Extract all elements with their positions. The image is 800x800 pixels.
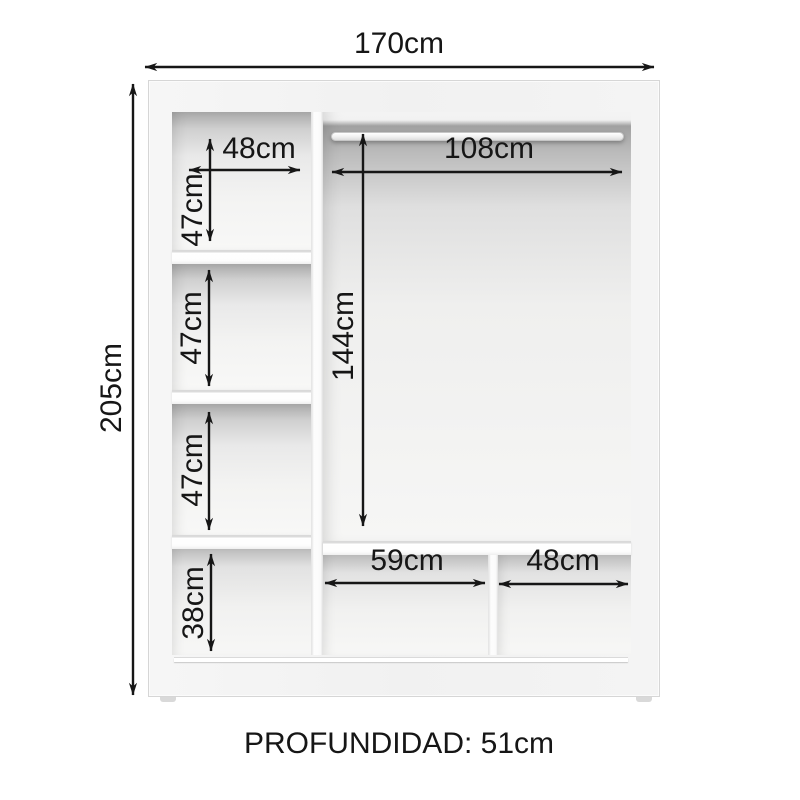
divider-main-vertical: [311, 112, 323, 655]
dim-rod-width-label: 108cm: [444, 132, 534, 166]
compartment-hanging: [323, 112, 631, 541]
dim-bottom-right-width-label: 48cm: [526, 544, 599, 578]
depth-note: PROFUNDIDAD: 51cm: [244, 727, 554, 761]
foot-right: [636, 697, 652, 702]
plinth-edge: [174, 658, 628, 662]
dim-middle-left-height-label: 47cm: [175, 291, 209, 364]
foot-left: [160, 697, 176, 702]
wardrobe-diagram: 170cm 205cm 48cm 47cm 47cm 47cm 38cm 108…: [0, 0, 800, 800]
shelf-left-2: [172, 390, 311, 404]
dim-upper-left-width-label: 48cm: [222, 132, 295, 166]
shelf-left-3: [172, 535, 311, 549]
dim-bottom-middle-width-label: 59cm: [370, 544, 443, 578]
dim-total-width-label: 170cm: [354, 27, 444, 61]
dim-upper-left-height-label: 47cm: [176, 173, 210, 246]
shelf-left-1: [172, 250, 311, 264]
dim-lower-left-height-label: 47cm: [176, 433, 210, 506]
dim-hanging-height-label: 144cm: [327, 291, 361, 381]
divider-bottom-vertical: [488, 555, 498, 655]
dim-total-height-label: 205cm: [95, 343, 129, 433]
dim-bottom-left-height-label: 38cm: [177, 566, 211, 639]
